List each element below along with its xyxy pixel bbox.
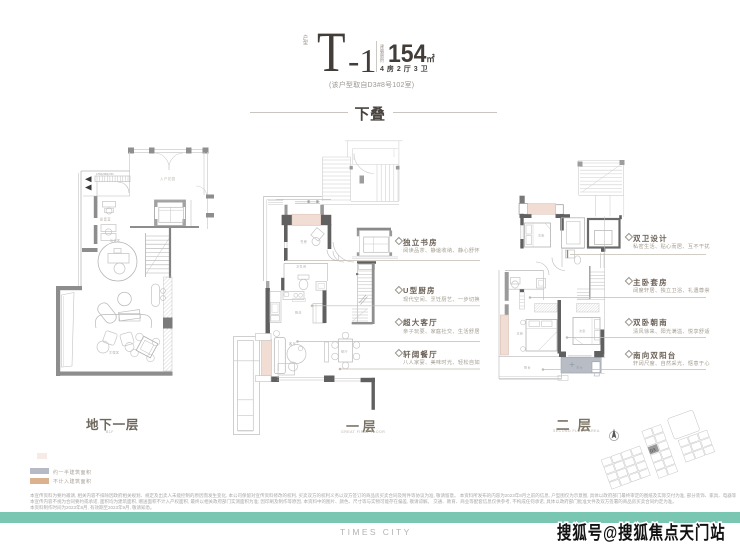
svg-text:餐厅: 餐厅 — [341, 349, 348, 354]
svg-text:1750(2460)x700: 1750(2460)x700 — [96, 173, 114, 176]
svg-text:入户花园: 入户花园 — [160, 176, 176, 181]
svg-text:客厅: 客厅 — [289, 341, 297, 346]
svg-text:影音室: 影音室 — [100, 217, 111, 222]
svg-text:主卧: 主卧 — [517, 331, 524, 336]
svg-text:阳台: 阳台 — [576, 365, 583, 369]
svg-text:洽谈区: 洽谈区 — [110, 238, 121, 243]
svg-text:阳台: 阳台 — [524, 365, 531, 370]
svg-text:次卧: 次卧 — [538, 233, 545, 238]
svg-text:文娱区: 文娱区 — [109, 350, 120, 355]
svg-text:书房: 书房 — [300, 239, 307, 244]
svg-text:厨房: 厨房 — [295, 310, 302, 315]
svg-text:卫生间: 卫生间 — [296, 264, 307, 269]
svg-text:次卧: 次卧 — [579, 328, 586, 333]
